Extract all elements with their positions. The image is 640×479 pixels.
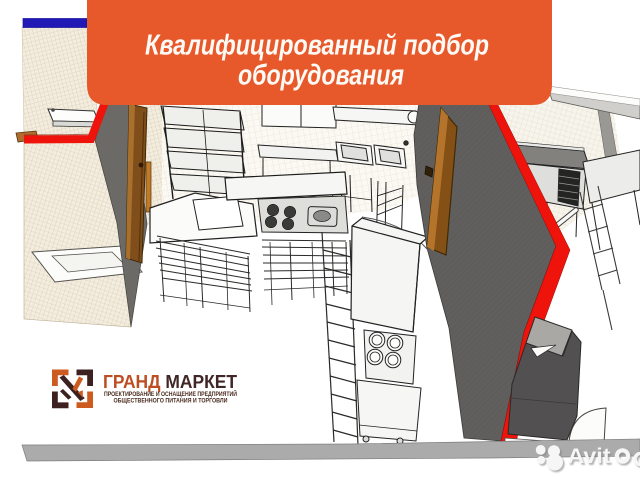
svg-text:ГРАНД МАРКЕТ: ГРАНД МАРКЕТ	[103, 372, 237, 392]
svg-text:Квалифицированный подбор: Квалифицированный подбор	[145, 30, 489, 62]
svg-text:ОБЩЕСТВЕННОГО ПИТАНИЯ И ТОРГОВ: ОБЩЕСТВЕННОГО ПИТАНИЯ И ТОРГОВЛИ	[114, 399, 228, 405]
svg-text:оборудования: оборудования	[238, 60, 404, 92]
svg-text:ПРОЕКТИРОВАНИЕ И ОСНАЩЕНИЕ ПРЕ: ПРОЕКТИРОВАНИЕ И ОСНАЩЕНИЕ ПРЕДПРИЯТИЙ	[104, 390, 237, 398]
svg-text:Avit: Avit	[568, 445, 611, 468]
